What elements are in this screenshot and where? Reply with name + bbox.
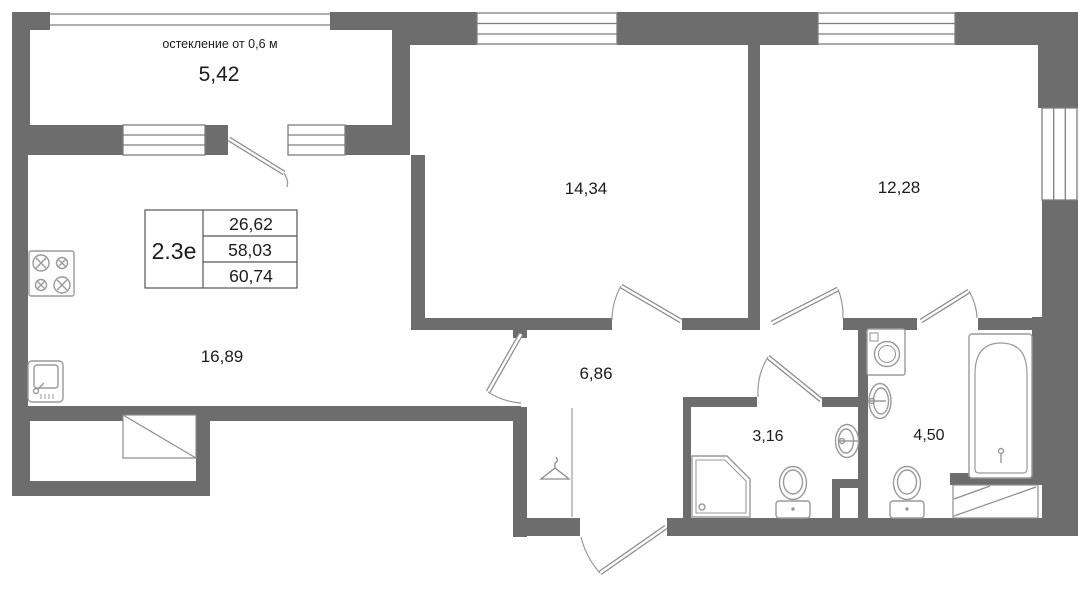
- wall-segment: [411, 155, 425, 330]
- wall-segment: [196, 421, 210, 496]
- stat-area: 58,03: [228, 240, 272, 260]
- bedroom1-area-label: 14,34: [565, 179, 608, 198]
- wall-segment: [832, 479, 840, 520]
- toilet-small-icon: [776, 467, 810, 519]
- bedroom2-side-window: [1042, 108, 1077, 200]
- bedroom2-window: [818, 13, 955, 44]
- wall-segment: [205, 125, 228, 155]
- unit-type-label: 2.3е: [152, 238, 197, 264]
- fixtures: [28, 251, 1038, 518]
- wall-segment: [683, 397, 691, 518]
- wardrobe: [541, 408, 572, 517]
- balcony-glazing-line: [50, 14, 330, 25]
- wall-segment: [12, 481, 210, 496]
- toilet-large-icon: [890, 467, 924, 519]
- kitchen-area-label: 16,89: [201, 347, 244, 366]
- wall-segment: [1042, 200, 1078, 536]
- wall-segment: [1032, 317, 1042, 473]
- stat-total-area: 60,74: [229, 266, 273, 286]
- bedroom2-area-label: 12,28: [878, 178, 921, 197]
- shower-icon: [692, 456, 750, 517]
- wall-segment: [822, 397, 860, 407]
- wall-segment: [12, 125, 28, 421]
- wall-segment: [410, 12, 477, 45]
- washing-machine-icon: [867, 329, 905, 375]
- wall-segment: [683, 397, 757, 407]
- hall-area-label: 6,86: [579, 364, 612, 383]
- wall-segment: [748, 45, 760, 330]
- wall-segment: [843, 318, 917, 330]
- bedroom1-window: [477, 13, 617, 44]
- shaft-hatch: [953, 485, 1038, 518]
- wall-segment: [955, 12, 1042, 45]
- entrance-door: [581, 527, 666, 573]
- wall-segment: [28, 125, 123, 155]
- wall-segment: [345, 125, 410, 155]
- wall-segment: [1038, 12, 1078, 108]
- bedroom1-door: [612, 286, 681, 321]
- wall-segment: [667, 518, 1077, 536]
- washbasin-small-icon: [836, 425, 859, 458]
- wall-segment: [411, 318, 612, 330]
- balcony-area-label: 5,42: [199, 63, 240, 86]
- wall-segment: [513, 518, 580, 536]
- wall-segment: [682, 318, 758, 330]
- stat-living-area: 26,62: [229, 214, 273, 234]
- kitchen-sink-icon: [28, 361, 63, 402]
- bathroom-small-area-label: 3,16: [752, 428, 783, 445]
- wall-segment: [330, 12, 392, 30]
- bathroom-small-door: [758, 357, 821, 400]
- glazing-note: остекление от 0,6 м: [162, 37, 277, 51]
- hanger-icon: [541, 457, 569, 479]
- alcove-hatch-box: [123, 415, 196, 458]
- bathroom-large-area-label: 4,50: [913, 427, 944, 444]
- floor-plan-page: остекление от 0,6 м 5,42 14,34 12,28 16,…: [0, 0, 1091, 600]
- wall-segment: [513, 407, 527, 537]
- wall-segment: [12, 406, 521, 421]
- stove-icon: [29, 251, 74, 296]
- bathtub-icon: [969, 334, 1032, 478]
- floor-plan-drawing: остекление от 0,6 м 5,42 14,34 12,28 16,…: [0, 0, 1091, 600]
- wall-segment: [617, 12, 818, 45]
- washbasin-large-icon: [868, 384, 891, 419]
- bathroom-large-door: [921, 291, 977, 321]
- kitchen-door: [488, 334, 521, 403]
- balcony-door: [229, 139, 288, 187]
- bedroom2-door: [772, 289, 843, 323]
- labels: остекление от 0,6 м 5,42 14,34 12,28 16,…: [152, 37, 945, 445]
